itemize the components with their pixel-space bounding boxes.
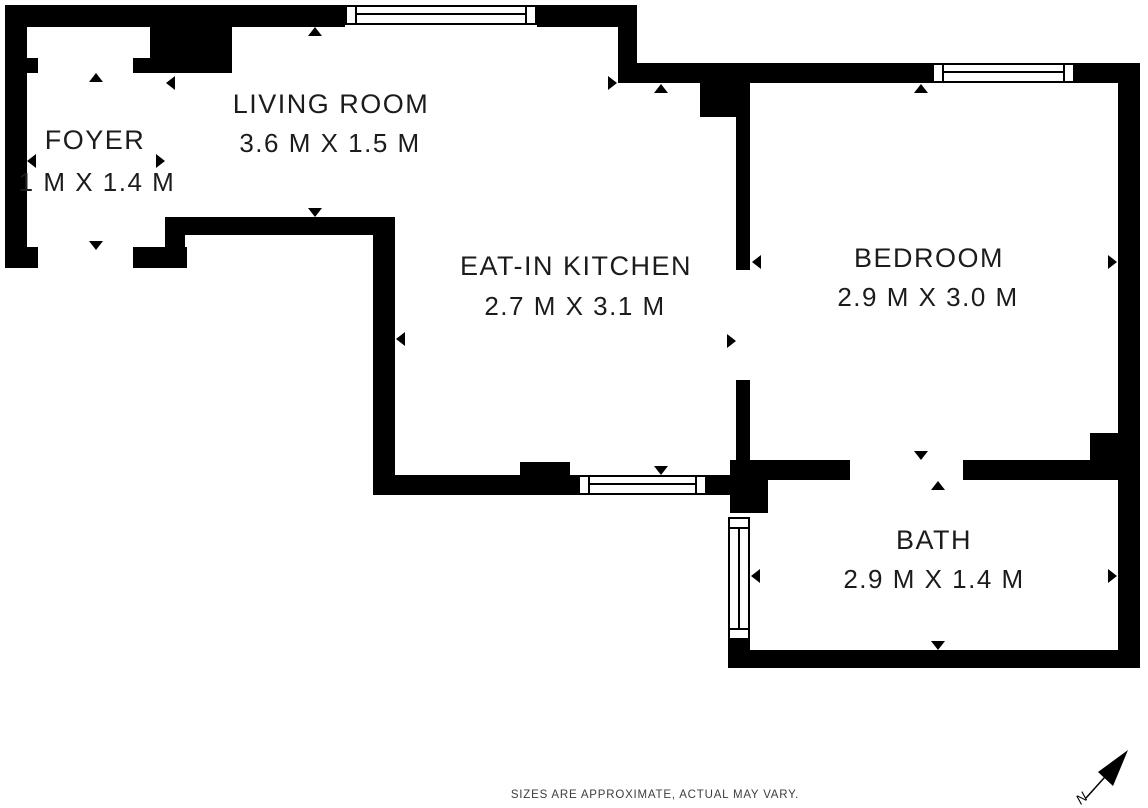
bedroom-label: BEDROOM	[729, 243, 1129, 274]
kitchen-label: EAT-IN KITCHEN	[376, 251, 776, 282]
dimension-arrow-living-room-down	[308, 208, 322, 217]
bedroom-dimensions: 2.9 M X 3.0 M	[728, 282, 1128, 313]
wall	[736, 380, 750, 460]
dimension-arrow-kitchen-up	[654, 84, 668, 93]
dimension-arrow-bedroom-down	[914, 451, 928, 460]
bedroom-window	[932, 63, 1075, 83]
window-frame-line	[695, 477, 697, 493]
window-frame-line	[525, 7, 527, 23]
svg-text:N: N	[1072, 788, 1091, 806]
dimension-arrow-foyer-down	[89, 241, 103, 250]
bath-dimensions: 2.9 M X 1.4 M	[734, 564, 1134, 595]
dimension-arrow-kitchen-left	[396, 332, 405, 346]
wall	[707, 475, 730, 495]
wall	[373, 475, 578, 495]
size-disclaimer: SIZES ARE APPROXIMATE, ACTUAL MAY VARY.	[355, 789, 955, 801]
wall	[963, 460, 1118, 480]
window-frame-line	[730, 628, 748, 630]
wall	[133, 247, 187, 268]
dimension-arrow-kitchen-right	[727, 334, 736, 348]
wall	[150, 5, 232, 73]
dimension-arrow-bath-up	[931, 481, 945, 490]
dimension-arrow-bedroom-up	[914, 84, 928, 93]
north-arrow: N	[1058, 736, 1146, 808]
wall	[1090, 433, 1118, 460]
kitchen-dimensions: 2.7 M X 3.1 M	[375, 291, 775, 322]
window-glass-line	[357, 13, 525, 15]
dimension-arrow-foyer-up	[89, 73, 103, 82]
living-room-window	[345, 5, 537, 25]
wall	[618, 63, 932, 83]
dimension-arrow-living-room-up	[308, 27, 322, 36]
north-arrow-icon: N	[1058, 736, 1146, 806]
bath-label: BATH	[734, 525, 1134, 556]
wall	[133, 58, 152, 73]
wall	[5, 247, 38, 268]
dimension-arrow-living-room-right	[608, 76, 617, 90]
floor-plan: FOYER 1 M X 1.4 M LIVING ROOM 3.6 M X 1.…	[0, 0, 1148, 808]
wall	[165, 235, 185, 247]
wall	[1075, 63, 1118, 83]
dimension-arrow-living-room-left	[166, 76, 175, 90]
window-frame-line	[1063, 65, 1065, 81]
living-room-dimensions: 3.6 M X 1.5 M	[130, 128, 530, 159]
dimension-arrow-bath-down	[931, 641, 945, 650]
wall	[520, 462, 570, 475]
wall	[743, 460, 850, 480]
foyer-dimensions: 1 M X 1.4 M	[0, 167, 297, 198]
living-room-label: LIVING ROOM	[131, 89, 531, 120]
kitchen-window	[578, 475, 707, 495]
wall	[25, 58, 38, 73]
wall	[165, 217, 395, 235]
dimension-arrow-kitchen-down	[654, 466, 668, 475]
wall	[618, 5, 637, 63]
wall	[700, 83, 750, 117]
dimension-arrow-foyer-left	[27, 154, 36, 168]
window-glass-line	[590, 483, 695, 485]
wall	[728, 650, 1140, 668]
window-glass-line	[944, 71, 1063, 73]
